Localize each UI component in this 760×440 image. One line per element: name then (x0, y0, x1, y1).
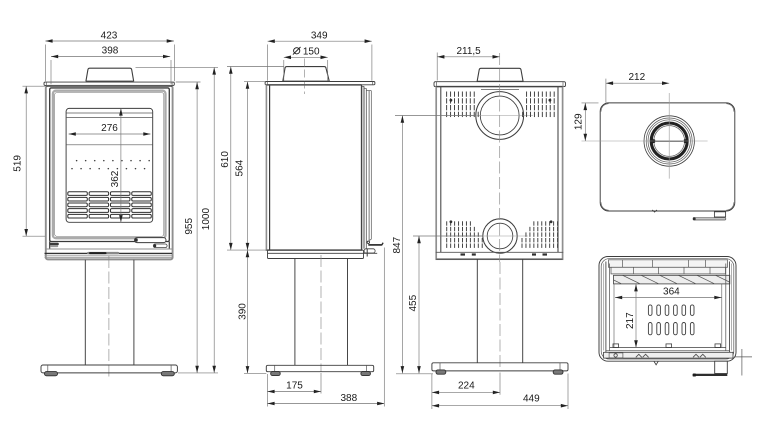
svg-text:217: 217 (625, 312, 636, 329)
svg-text:349: 349 (311, 31, 328, 42)
svg-text:564: 564 (235, 159, 246, 176)
svg-text:955: 955 (184, 218, 195, 235)
svg-text:847: 847 (392, 236, 403, 253)
svg-text:423: 423 (101, 30, 118, 41)
svg-text:276: 276 (101, 123, 118, 134)
svg-text:455: 455 (408, 294, 419, 311)
svg-text:610: 610 (220, 151, 231, 168)
svg-text:449: 449 (523, 394, 540, 405)
svg-text:211,5: 211,5 (456, 46, 481, 57)
svg-text:364: 364 (663, 287, 680, 298)
svg-text:150: 150 (303, 46, 320, 57)
svg-text:519: 519 (13, 155, 24, 172)
svg-text:224: 224 (458, 381, 475, 392)
svg-text:388: 388 (340, 393, 357, 404)
svg-text:398: 398 (102, 46, 119, 57)
svg-text:129: 129 (574, 113, 585, 130)
svg-text:175: 175 (286, 381, 303, 392)
svg-text:212: 212 (628, 72, 645, 83)
svg-text:390: 390 (238, 303, 249, 320)
svg-text:1000: 1000 (201, 208, 212, 231)
svg-text:362: 362 (110, 170, 121, 187)
